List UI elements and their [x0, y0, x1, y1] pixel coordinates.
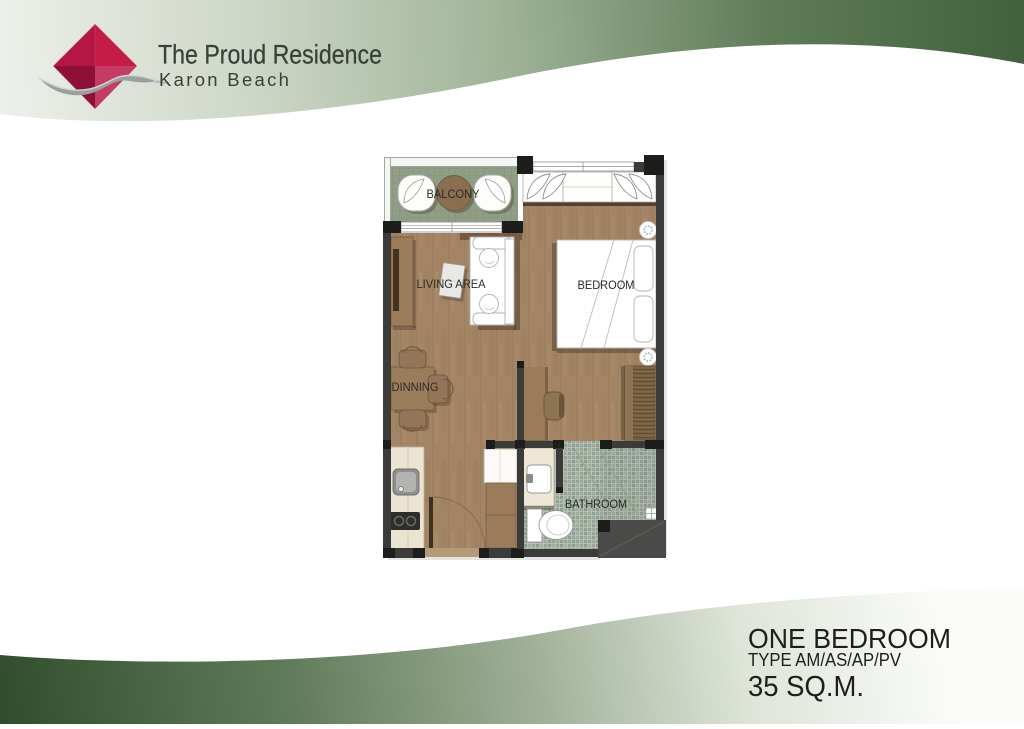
svg-text:BEDROOM: BEDROOM: [578, 280, 635, 292]
svg-text:BALCONY: BALCONY: [427, 189, 480, 201]
svg-text:The Proud Residence: The Proud Residence: [158, 40, 382, 70]
svg-text:TYPE AM/AS/AP/PV: TYPE AM/AS/AP/PV: [748, 650, 901, 670]
svg-text:LIVING AREA: LIVING AREA: [417, 279, 486, 291]
svg-text:DINNING: DINNING: [392, 382, 439, 394]
svg-text:35 SQ.M.: 35 SQ.M.: [748, 671, 864, 703]
svg-text:BATHROOM: BATHROOM: [565, 499, 627, 511]
svg-text:Karon Beach: Karon Beach: [159, 69, 291, 90]
